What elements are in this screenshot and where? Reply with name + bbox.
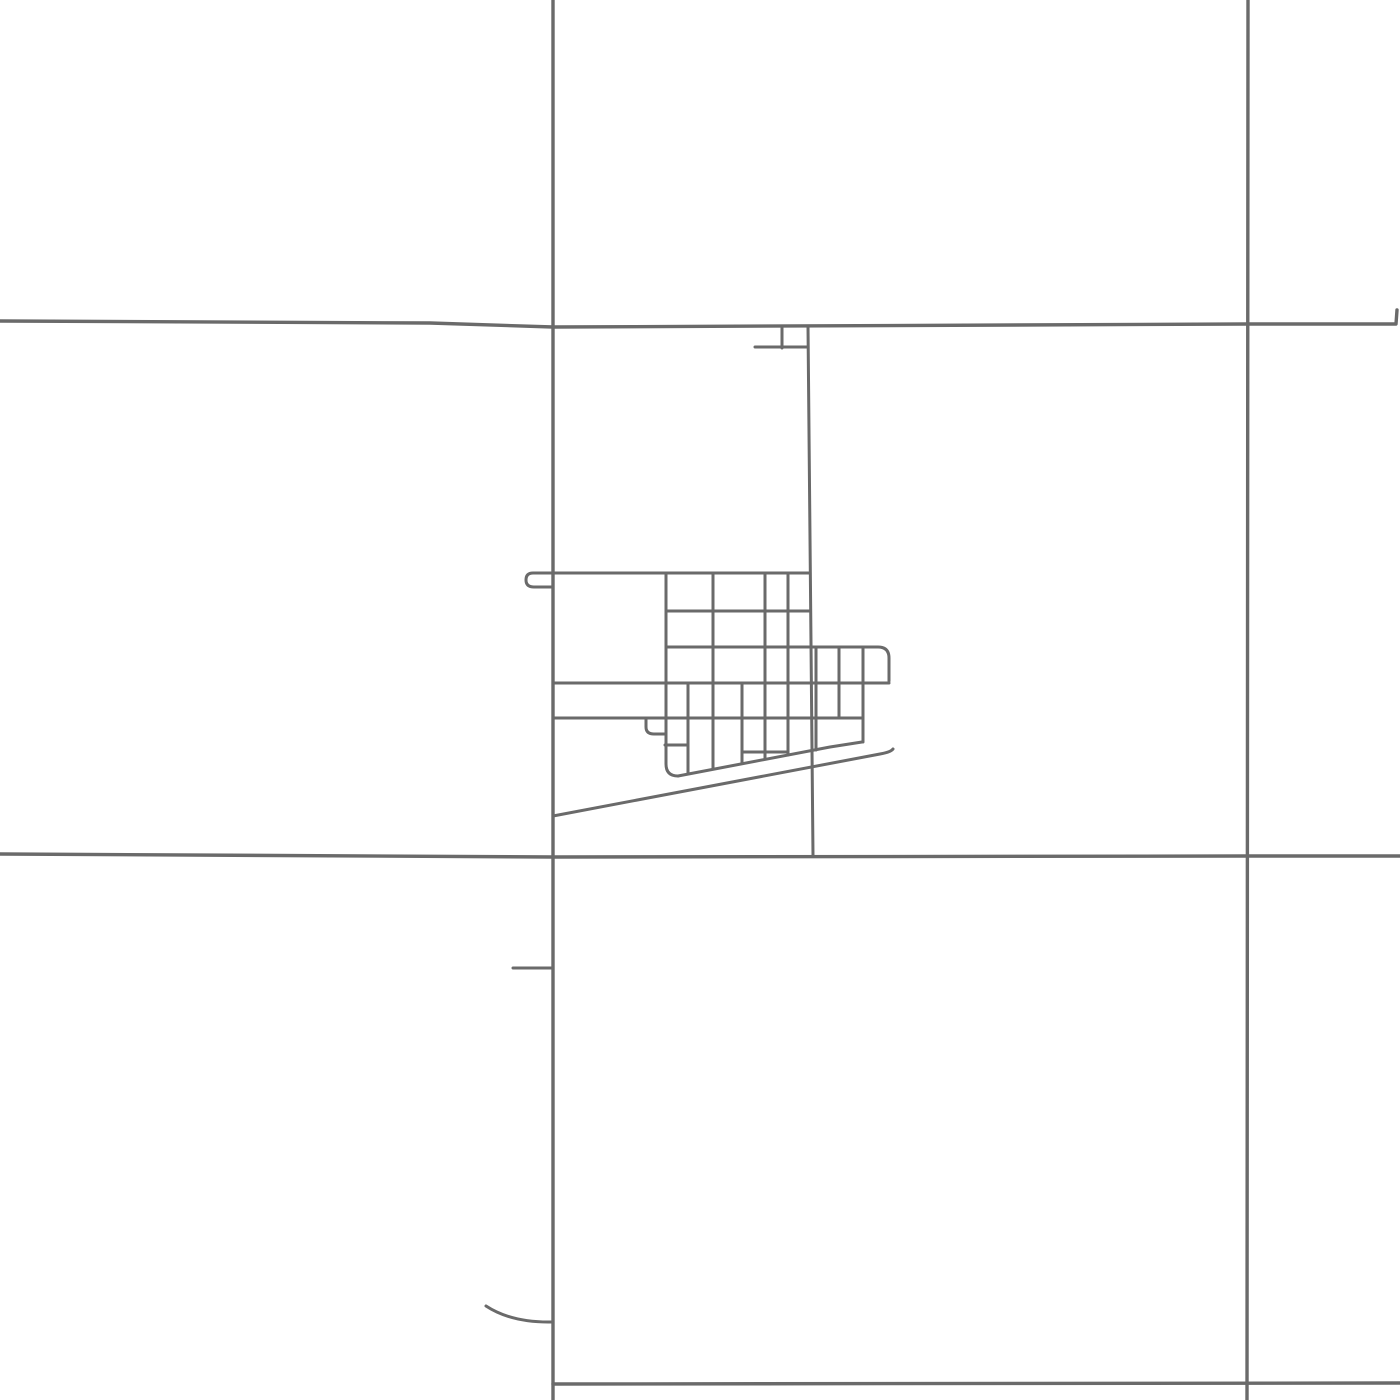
section-road-horizontal-mid (0, 854, 1400, 857)
alley-hook (646, 718, 665, 734)
main-street-north-south (808, 326, 813, 855)
south-boundary-road (678, 742, 862, 776)
diagonal-highway (553, 749, 893, 816)
section-road-vertical-east (1247, 0, 1248, 1400)
section-road-horizontal-south (553, 1383, 1400, 1384)
road-map-svg (0, 0, 1400, 1400)
town-street-row-3 (666, 647, 889, 681)
map-canvas[interactable] (0, 0, 1400, 1400)
northwest-hook-culdesac (526, 573, 553, 587)
southwest-curve-road (486, 1306, 553, 1322)
section-road-horizontal-north (0, 310, 1397, 327)
